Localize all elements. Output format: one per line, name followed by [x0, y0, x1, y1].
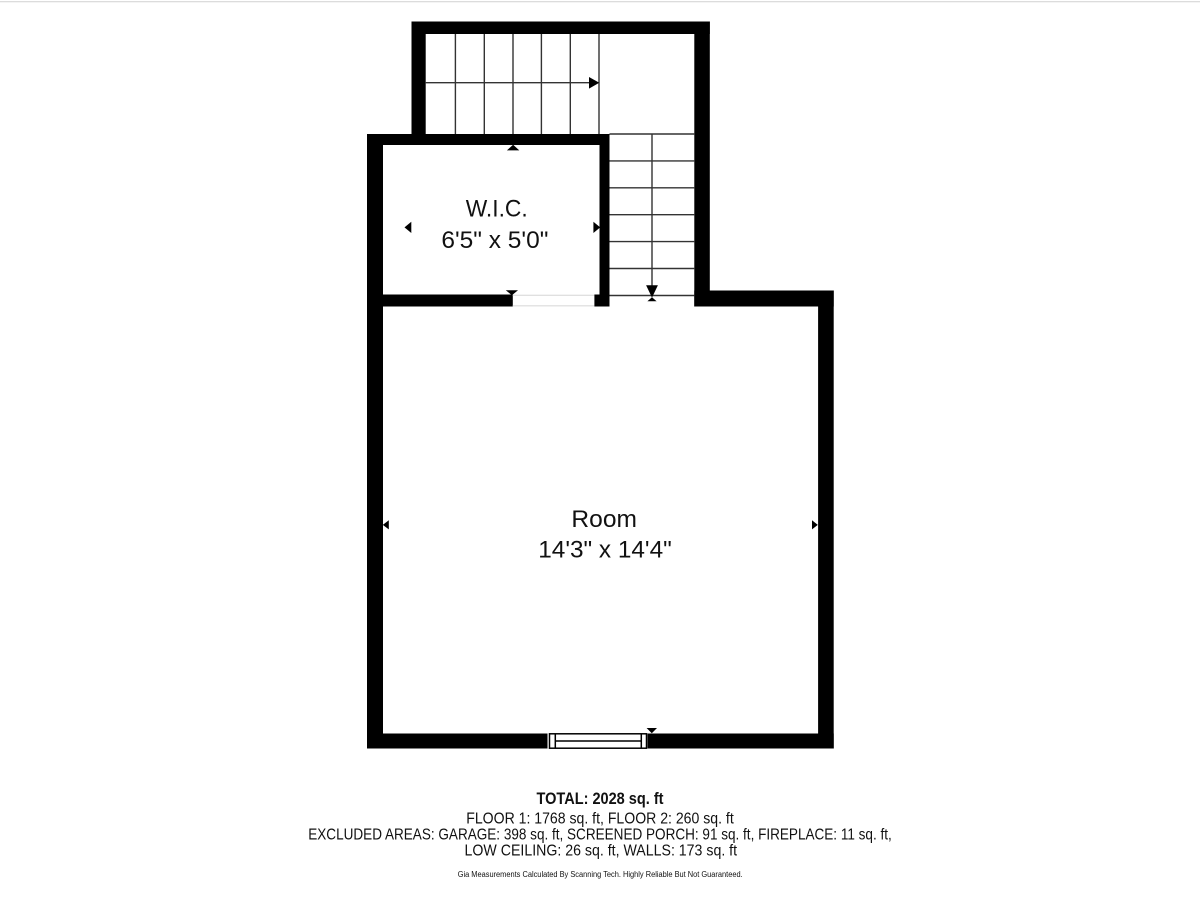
svg-text:6'5" x 5'0": 6'5" x 5'0": [441, 227, 548, 254]
svg-text:W.I.C.: W.I.C.: [466, 196, 528, 223]
svg-text:TOTAL: 2028 sq. ft: TOTAL: 2028 sq. ft: [537, 790, 664, 808]
svg-text:LOW CEILING: 26 sq. ft, WALLS:: LOW CEILING: 26 sq. ft, WALLS: 173 sq. f…: [465, 843, 738, 860]
svg-text:14'3" x 14'4": 14'3" x 14'4": [538, 536, 672, 563]
svg-text:Gia Measurements Calculated By: Gia Measurements Calculated By Scanning …: [458, 870, 743, 879]
svg-text:Room: Room: [571, 506, 637, 533]
svg-text:EXCLUDED AREAS: GARAGE: 398 sq: EXCLUDED AREAS: GARAGE: 398 sq. ft, SCRE…: [308, 827, 892, 844]
svg-text:FLOOR 1: 1768 sq. ft, FLOOR 2:: FLOOR 1: 1768 sq. ft, FLOOR 2: 260 sq. f…: [466, 811, 734, 828]
